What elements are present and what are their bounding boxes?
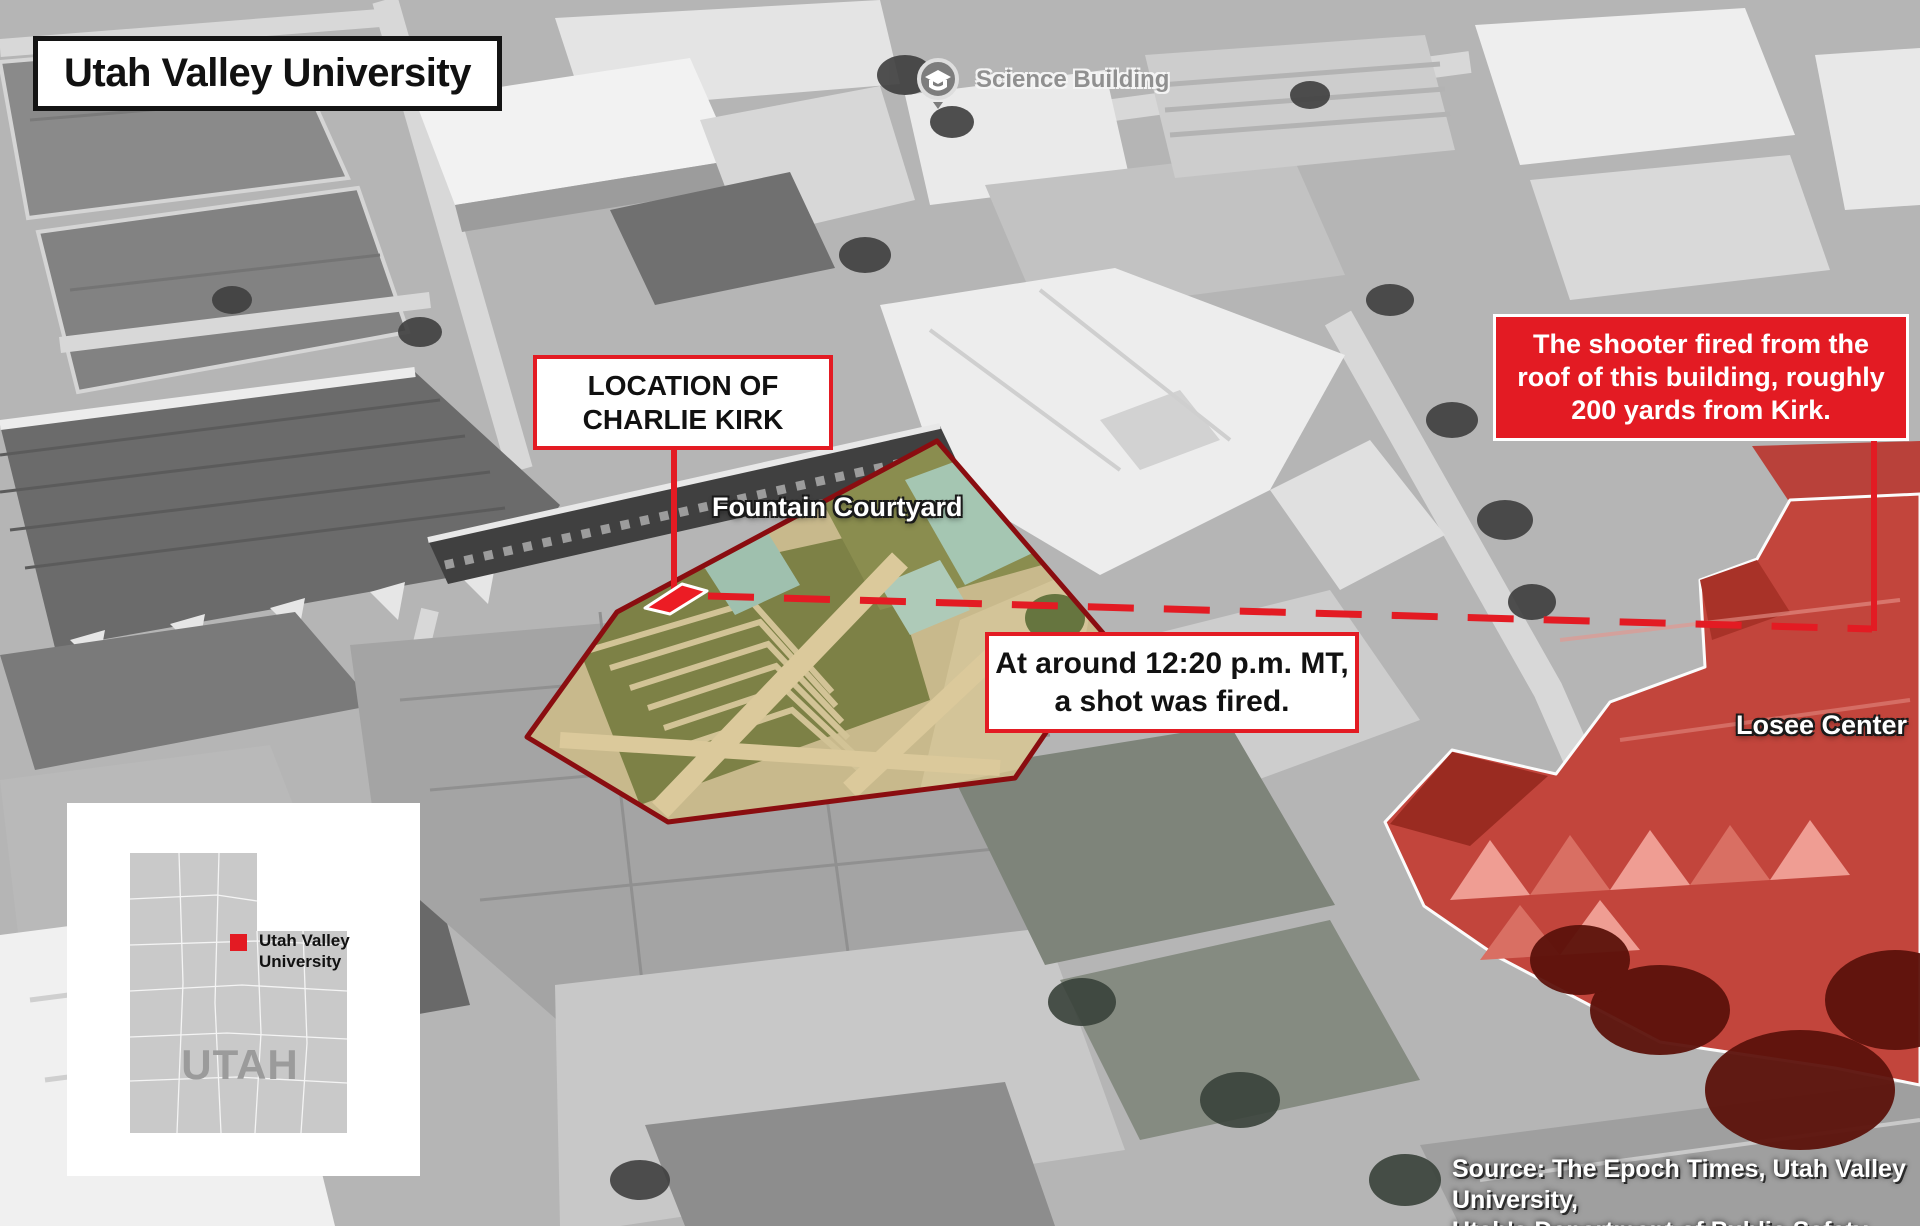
uvu-location-marker bbox=[230, 934, 247, 951]
science-building-label: Science Building bbox=[976, 66, 1169, 94]
campus-map-infographic: Science Building Fountain Courtyard Lose… bbox=[0, 0, 1920, 1226]
shooter-line1: The shooter fired from the bbox=[1504, 328, 1898, 361]
buildings-north bbox=[415, 0, 1345, 315]
source-credit: Source: The Epoch Times, Utah Valley Uni… bbox=[1452, 1154, 1920, 1226]
utah-inset-map: Utah Valley University UTAH bbox=[67, 803, 420, 1176]
shooter-line3: 200 yards from Kirk. bbox=[1504, 394, 1898, 427]
utah-state-label: UTAH bbox=[67, 1041, 413, 1089]
fountain-courtyard-label: Fountain Courtyard bbox=[712, 492, 963, 523]
shot-time-line2: a shot was fired. bbox=[995, 683, 1349, 721]
kirk-location-line2: CHARLIE KIRK bbox=[543, 403, 823, 437]
source-line1: Source: The Epoch Times, Utah Valley Uni… bbox=[1452, 1154, 1920, 1216]
losee-roof-sawtooth bbox=[1450, 820, 1850, 960]
shot-time-line1: At around 12:20 p.m. MT, bbox=[995, 645, 1349, 683]
shot-trajectory-dashed-line bbox=[708, 596, 1872, 629]
map-title: Utah Valley University bbox=[33, 36, 502, 111]
buildings-northeast bbox=[1145, 8, 1920, 300]
kirk-location-callout: LOCATION OF CHARLIE KIRK bbox=[533, 355, 833, 450]
losee-center-label: Losee Center bbox=[1736, 710, 1907, 741]
source-line2: Utah's Department of Public Safety bbox=[1452, 1216, 1920, 1226]
losee-dark-trees bbox=[1530, 925, 1920, 1150]
utah-state-shape bbox=[67, 803, 420, 1176]
courtyard-highlight bbox=[527, 430, 1223, 822]
shooter-line2: roof of this building, roughly bbox=[1504, 361, 1898, 394]
uvu-inset-label: Utah Valley University bbox=[259, 930, 350, 972]
kirk-location-line1: LOCATION OF bbox=[543, 369, 823, 403]
kirk-leader-line bbox=[671, 444, 677, 590]
losee-center-highlight bbox=[1385, 441, 1920, 1150]
shooter-callout: The shooter fired from the roof of this … bbox=[1493, 314, 1909, 441]
graduation-cap-map-pin-icon bbox=[915, 58, 961, 110]
shot-time-callout: At around 12:20 p.m. MT, a shot was fire… bbox=[985, 632, 1359, 733]
shooter-leader-line bbox=[1871, 437, 1877, 631]
